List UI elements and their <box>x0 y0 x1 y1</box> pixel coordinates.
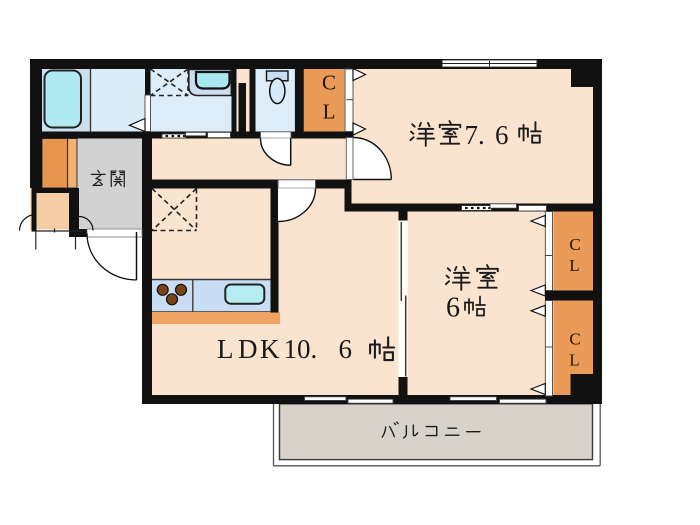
svg-text:D: D <box>238 334 258 364</box>
svg-text:C: C <box>322 71 336 95</box>
svg-text:C: C <box>569 330 580 349</box>
svg-text:L: L <box>569 256 579 275</box>
svg-text:6: 6 <box>339 334 353 364</box>
svg-text:L: L <box>569 351 579 370</box>
svg-text:L: L <box>323 100 336 124</box>
svg-text:C: C <box>569 235 580 254</box>
svg-text:6: 6 <box>495 120 509 150</box>
svg-text:7.: 7. <box>465 120 485 150</box>
svg-text:6: 6 <box>446 293 460 324</box>
svg-text:L: L <box>217 334 234 364</box>
svg-text:K: K <box>260 334 280 364</box>
svg-text:10.: 10. <box>284 334 318 364</box>
